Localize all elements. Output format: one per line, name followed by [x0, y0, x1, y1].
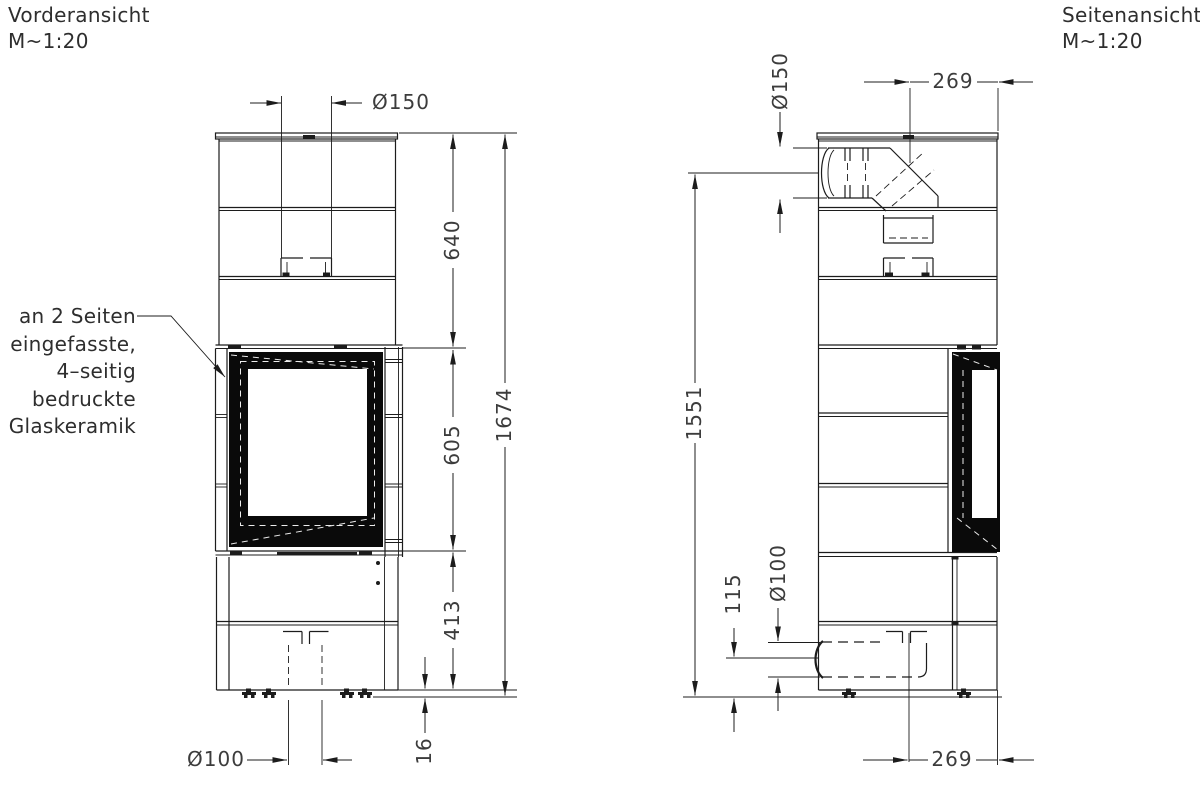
front-view-drawing	[216, 96, 518, 765]
dim-side-flue-diameter: Ø150	[768, 52, 792, 110]
dim-side-flue-axis-to-front: 269	[932, 69, 973, 93]
front-door-bottom	[216, 551, 403, 585]
dim-front-top-to-window: 640	[440, 219, 464, 260]
flue-pipe-hidden-front	[281, 96, 332, 277]
front-left-pillar	[216, 349, 228, 552]
dim-side-inlet-axis-to-floor: 115	[721, 573, 745, 614]
dim-side-air-inlet-diameter: Ø100	[766, 544, 790, 602]
air-inlet-pipe-side	[816, 632, 928, 679]
front-view-title: Vorderansicht	[8, 3, 150, 27]
side-window-glass	[952, 352, 1000, 552]
glaskeramik-leader-line	[137, 316, 225, 377]
technical-drawing-page: Vorderansicht M~1:20 Seitenansicht M~1:2…	[0, 0, 1200, 786]
front-lower-blocks	[217, 557, 399, 690]
side-top-plate	[817, 133, 998, 139]
glass-annotation-line: eingefasste,	[0, 331, 136, 359]
dim-front-foot-height: 16	[412, 737, 436, 764]
front-upper-blocks	[219, 139, 396, 345]
front-window-glass	[229, 352, 383, 547]
front-view-scale: M~1:20	[8, 29, 89, 53]
glass-annotation-line: an 2 Seiten	[0, 303, 136, 331]
air-inlet-hidden-front	[283, 632, 329, 690]
side-view-drawing	[683, 82, 1034, 765]
drawing-canvas	[0, 0, 1200, 786]
dim-side-flue-axis-to-floor: 1551	[682, 386, 706, 441]
front-top-plate	[216, 133, 398, 139]
glass-annotation-line: Glaskeramik	[0, 413, 136, 441]
glass-annotation: an 2 Seiten eingefasste, 4–seitig bedruc…	[0, 303, 136, 441]
dim-front-flue-diameter: Ø150	[372, 90, 430, 114]
glass-annotation-line: 4–seitig	[0, 358, 136, 386]
side-view-scale: M~1:20	[1062, 29, 1143, 53]
side-view-title: Seitenansicht	[1062, 3, 1200, 27]
dim-front-total-height: 1674	[492, 388, 516, 443]
dim-side-inlet-axis-to-front: 269	[931, 747, 972, 771]
dim-front-air-inlet-diameter: Ø100	[187, 747, 245, 771]
front-right-corner-strip	[385, 347, 403, 557]
flue-pipe-side	[822, 148, 939, 277]
dim-front-window-height: 605	[440, 424, 464, 465]
glass-annotation-line: bedruckte	[0, 386, 136, 414]
front-window-ledge	[216, 345, 403, 349]
dim-front-base-height: 413	[440, 599, 464, 640]
